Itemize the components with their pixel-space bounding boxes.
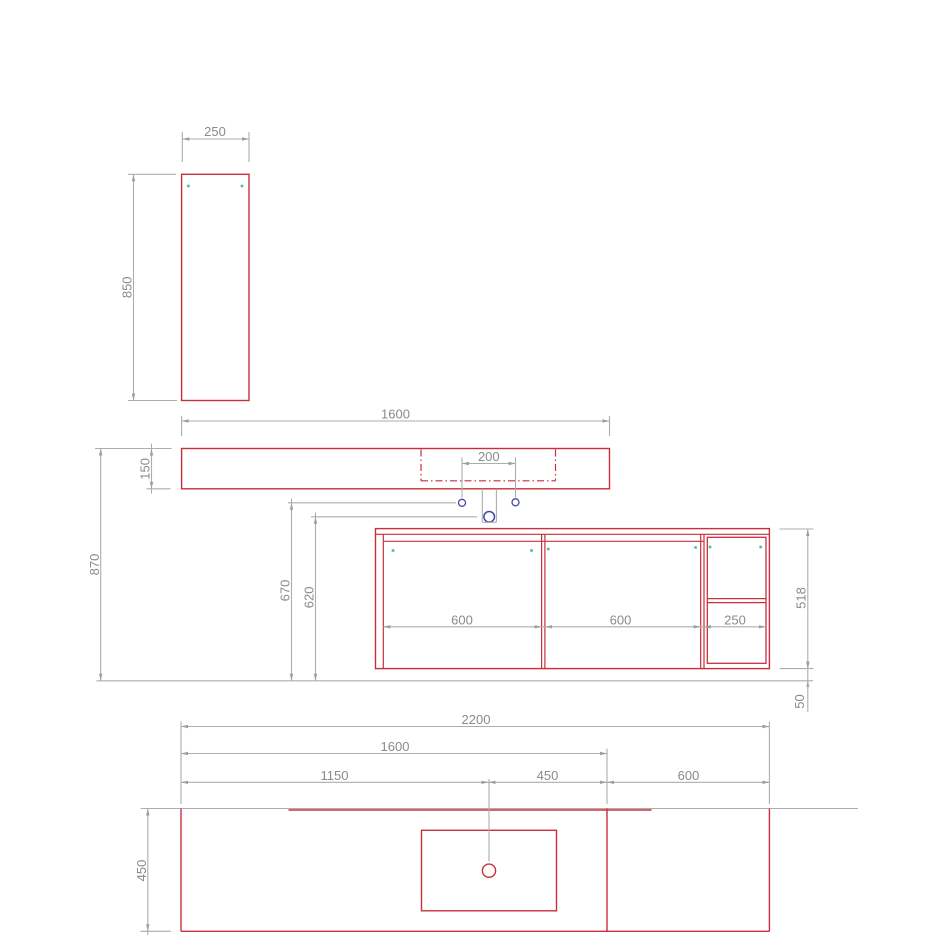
svg-text:600: 600 xyxy=(610,612,632,627)
svg-text:450: 450 xyxy=(537,768,559,783)
svg-text:250: 250 xyxy=(724,612,746,627)
svg-text:450: 450 xyxy=(134,860,149,882)
svg-text:150: 150 xyxy=(138,458,153,480)
svg-text:1600: 1600 xyxy=(381,407,410,422)
svg-text:1600: 1600 xyxy=(381,739,410,754)
svg-text:50: 50 xyxy=(792,694,807,708)
svg-text:850: 850 xyxy=(119,276,134,298)
svg-text:600: 600 xyxy=(451,612,473,627)
svg-text:670: 670 xyxy=(278,580,293,602)
svg-text:1150: 1150 xyxy=(321,768,349,783)
svg-text:600: 600 xyxy=(678,768,700,783)
svg-text:620: 620 xyxy=(301,587,316,609)
svg-text:870: 870 xyxy=(87,554,102,576)
svg-text:250: 250 xyxy=(204,124,226,139)
svg-text:2200: 2200 xyxy=(462,712,491,727)
svg-text:518: 518 xyxy=(794,587,809,609)
svg-text:200: 200 xyxy=(478,449,500,464)
